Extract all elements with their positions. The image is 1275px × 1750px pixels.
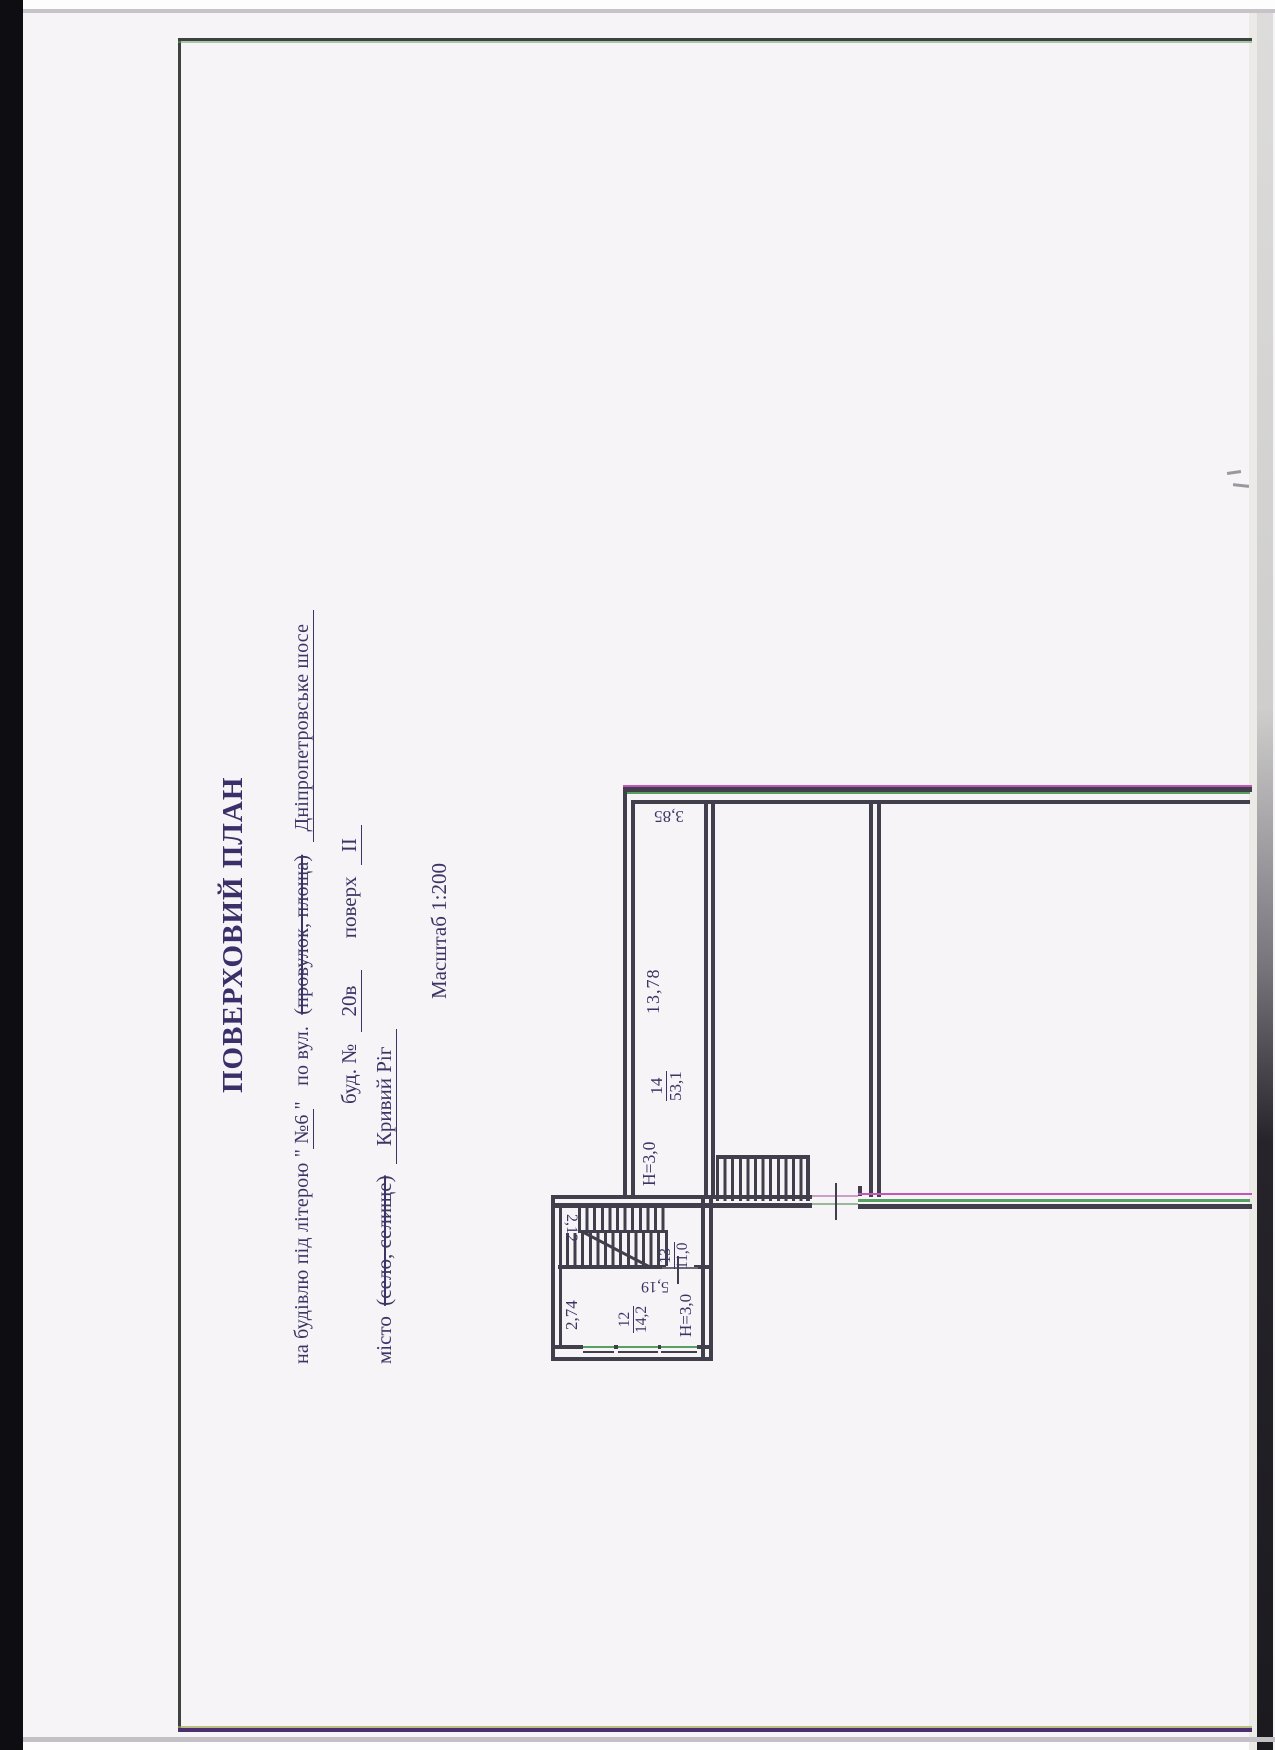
room-12-label: 12 14,2 — [617, 1295, 651, 1333]
corridor-length-dimension: 13,78 — [643, 969, 664, 1015]
street-label: по вул. — [291, 1026, 313, 1086]
room-12-height-label: Н=3,0 — [676, 1294, 696, 1337]
block-left-wall-outer — [551, 1195, 555, 1361]
city-struck-options: (село, селище) — [372, 1175, 396, 1305]
city-name: Кривий Ріг — [372, 1029, 397, 1165]
block-right-wall-outer — [709, 1195, 713, 1361]
scan-left-black-edge — [0, 0, 23, 1750]
corridor-left-wall-outer — [623, 787, 627, 1199]
paper-background — [23, 9, 1252, 1742]
door-dimension-tick — [835, 1183, 837, 1220]
window-line — [618, 1346, 658, 1348]
room-13-area: 11,0 — [675, 1242, 691, 1269]
block-right-wall-inner — [701, 1195, 705, 1361]
building-line: на будівлю під літерою "№6" по вул. (про… — [291, 610, 314, 1364]
scanned-floor-plan-page: { "form": { "title": "ПОВЕРХОВИЙ ПЛАН", … — [0, 0, 1275, 1750]
plan-top-wall-fringe2 — [623, 792, 1250, 794]
street-name: Дніпропетровське шосе — [291, 610, 314, 842]
room-12-area: 14,2 — [634, 1306, 650, 1333]
city-label: місто — [372, 1316, 396, 1364]
bottom-wall-seg2 — [858, 1204, 1252, 1209]
corridor-height-label: Н=3,0 — [639, 1142, 660, 1186]
block-bottom-wall-outer — [551, 1357, 710, 1361]
hall-partition-wall-a — [869, 800, 873, 1197]
block-bottom-pier — [697, 1345, 710, 1349]
stairs-upper-flight-hatch — [578, 1207, 668, 1233]
frame-top-fringe — [178, 41, 1252, 43]
corridor-left-wall-inner — [631, 800, 635, 1195]
house-label: буд. № — [337, 1044, 361, 1104]
paper-bottom-edge — [23, 1737, 1275, 1742]
frame-bottom-border — [178, 1728, 1252, 1732]
floor-value: II — [337, 825, 362, 865]
stair-flight-hatch-upper-run — [716, 1155, 810, 1201]
page-title: ПОВЕРХОВИЙ ПЛАН — [217, 777, 250, 1093]
room-13-number: 13 — [658, 1242, 675, 1269]
stair-width-dimension: 2,12 — [562, 1214, 580, 1242]
house-number: 20в — [337, 970, 362, 1033]
corridor-right-wall-outer — [711, 800, 715, 1195]
paper-top-edge — [23, 9, 1275, 13]
room-14-number: 14 — [648, 1071, 667, 1101]
window-line2 — [661, 1351, 697, 1353]
corridor-right-wall-inner — [704, 800, 708, 1195]
scale-label: Масштаб 1:200 — [427, 863, 452, 999]
scan-right-shadow — [1257, 13, 1273, 1750]
frame-left-border — [178, 38, 181, 1732]
window-line2 — [618, 1351, 658, 1353]
city-line: місто (село, селище) Кривий Ріг — [372, 1029, 397, 1364]
window-line — [583, 1346, 614, 1348]
room-12-number: 12 — [617, 1306, 634, 1333]
room-13-label: 13 11,0 — [658, 1222, 692, 1269]
bottom-wall-seg2-fringe — [858, 1193, 1252, 1195]
room-12-width-dimension: 2,74 — [562, 1300, 582, 1330]
bottom-wall-seg2-fringe2 — [858, 1199, 1250, 1202]
building-line-prefix: на будівлю під літерою " — [291, 1149, 313, 1364]
window-line2 — [583, 1351, 614, 1353]
room-12-length-dimension: 5,19 — [632, 1274, 678, 1295]
room-14-area: 53,1 — [667, 1071, 685, 1101]
window-line — [661, 1346, 697, 1348]
building-letter: №6 — [291, 1109, 314, 1148]
paper-right-edge — [1249, 13, 1257, 1750]
room-14-label: 14 53,1 — [648, 1053, 686, 1101]
hall-partition-wall-b — [877, 800, 881, 1197]
block-bottom-pier — [551, 1345, 583, 1349]
street-struck-options: (провулок, площа) — [291, 855, 313, 1015]
plan-top-wall-inner — [631, 800, 1250, 804]
corridor-width-dimension: 3,85 — [642, 804, 696, 826]
floor-label: поверх — [337, 876, 361, 938]
house-line: буд. № 20в поверх II — [337, 825, 362, 1104]
building-line-quote: " — [291, 1101, 313, 1109]
